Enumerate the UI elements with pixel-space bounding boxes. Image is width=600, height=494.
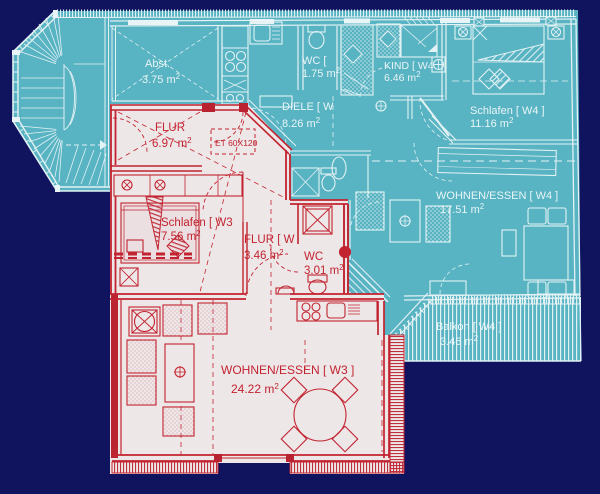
svg-text:Abst.: Abst. [145,58,170,70]
svg-text:1.75 m2: 1.75 m2 [302,66,341,80]
svg-text:6.46 m2: 6.46 m2 [384,70,421,84]
svg-text:8.26 m2: 8.26 m2 [282,116,321,130]
svg-text:KIND [ W4: KIND [ W4 [384,60,434,72]
svg-text:24.22 m2: 24.22 m2 [231,382,279,396]
svg-text:6.97 m2: 6.97 m2 [152,136,192,150]
svg-text:FLUR [ W: FLUR [ W [244,234,295,246]
svg-text:ET 60X120: ET 60X120 [215,138,258,148]
svg-text:WC: WC [304,251,323,263]
svg-text:Schlafen [ W4 ]: Schlafen [ W4 ] [470,105,545,117]
svg-text:3.46 m2: 3.46 m2 [440,334,479,348]
svg-text:WC [: WC [ [302,55,326,67]
svg-text:3.75 m2: 3.75 m2 [142,72,181,86]
svg-text:Balkon [ W4 ]: Balkon [ W4 ] [436,321,501,333]
svg-text:11.16 m2: 11.16 m2 [470,116,514,130]
svg-text:17.51 m2: 17.51 m2 [440,202,485,216]
svg-text:7.56 m2: 7.56 m2 [161,229,201,243]
svg-text:WOHNEN/ESSEN [ W4 ]: WOHNEN/ESSEN [ W4 ] [436,190,558,202]
svg-text:WOHNEN/ESSEN [ W3 ]: WOHNEN/ESSEN [ W3 ] [221,363,354,377]
svg-text:Schlafen [ W3: Schlafen [ W3 [161,217,233,229]
svg-text:3.46 m2: 3.46 m2 [244,248,284,262]
